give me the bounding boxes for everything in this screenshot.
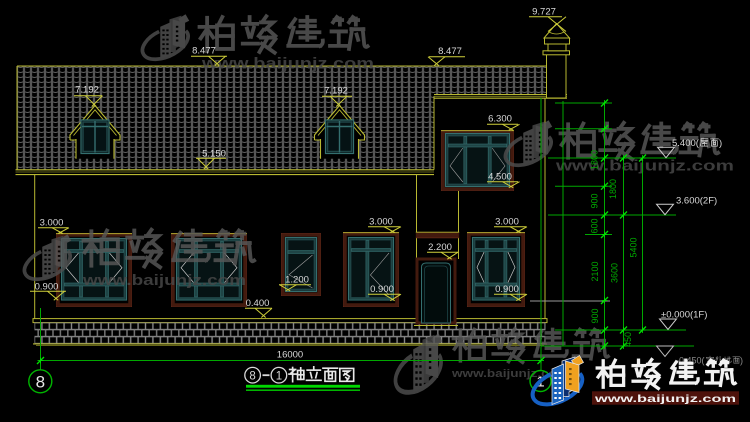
svg-text:1800: 1800 [608, 179, 618, 199]
svg-text:2100: 2100 [590, 261, 600, 281]
svg-text:0.900: 0.900 [495, 284, 519, 295]
svg-text:www.baijunjz.com: www.baijunjz.com [555, 159, 734, 175]
svg-text:8.477: 8.477 [192, 46, 216, 57]
svg-text:3.600(2F): 3.600(2F) [676, 196, 717, 207]
svg-text:900: 900 [590, 193, 600, 208]
svg-text:8: 8 [249, 371, 255, 383]
svg-text:16000: 16000 [277, 350, 303, 361]
svg-text:2.200: 2.200 [428, 242, 452, 253]
svg-text:3.000: 3.000 [40, 218, 64, 229]
svg-text:1: 1 [276, 371, 282, 383]
svg-text:8.477: 8.477 [438, 46, 462, 57]
svg-text:600: 600 [590, 218, 600, 233]
svg-text:5400: 5400 [629, 237, 639, 257]
svg-text:1.200: 1.200 [285, 275, 309, 286]
svg-text:7.192: 7.192 [75, 85, 99, 96]
svg-text:3600: 3600 [610, 263, 620, 283]
svg-text:3.000: 3.000 [495, 217, 519, 228]
svg-text:8: 8 [36, 373, 45, 392]
svg-text:900: 900 [590, 308, 600, 323]
svg-text:): ) [719, 138, 722, 149]
svg-text:www.baijunjz.com: www.baijunjz.com [201, 56, 374, 73]
svg-text:www.baijunjz.com: www.baijunjz.com [82, 272, 246, 289]
svg-text:9.727: 9.727 [532, 7, 556, 18]
svg-text:450: 450 [623, 332, 633, 347]
svg-text:3.000: 3.000 [369, 217, 393, 228]
svg-text:7.192: 7.192 [324, 86, 348, 97]
svg-text:0.400: 0.400 [246, 298, 270, 309]
svg-text:0.900: 0.900 [370, 284, 394, 295]
svg-text:4.500: 4.500 [488, 172, 512, 183]
svg-text:1800: 1800 [590, 150, 600, 170]
svg-text:www.baijunjz.com: www.baijunjz.com [451, 368, 569, 380]
svg-text:): ) [740, 356, 743, 366]
svg-text:5.400(: 5.400( [672, 138, 700, 149]
svg-text:www.baijunjz.com: www.baijunjz.com [593, 393, 736, 405]
svg-text:6.300: 6.300 [488, 114, 512, 125]
